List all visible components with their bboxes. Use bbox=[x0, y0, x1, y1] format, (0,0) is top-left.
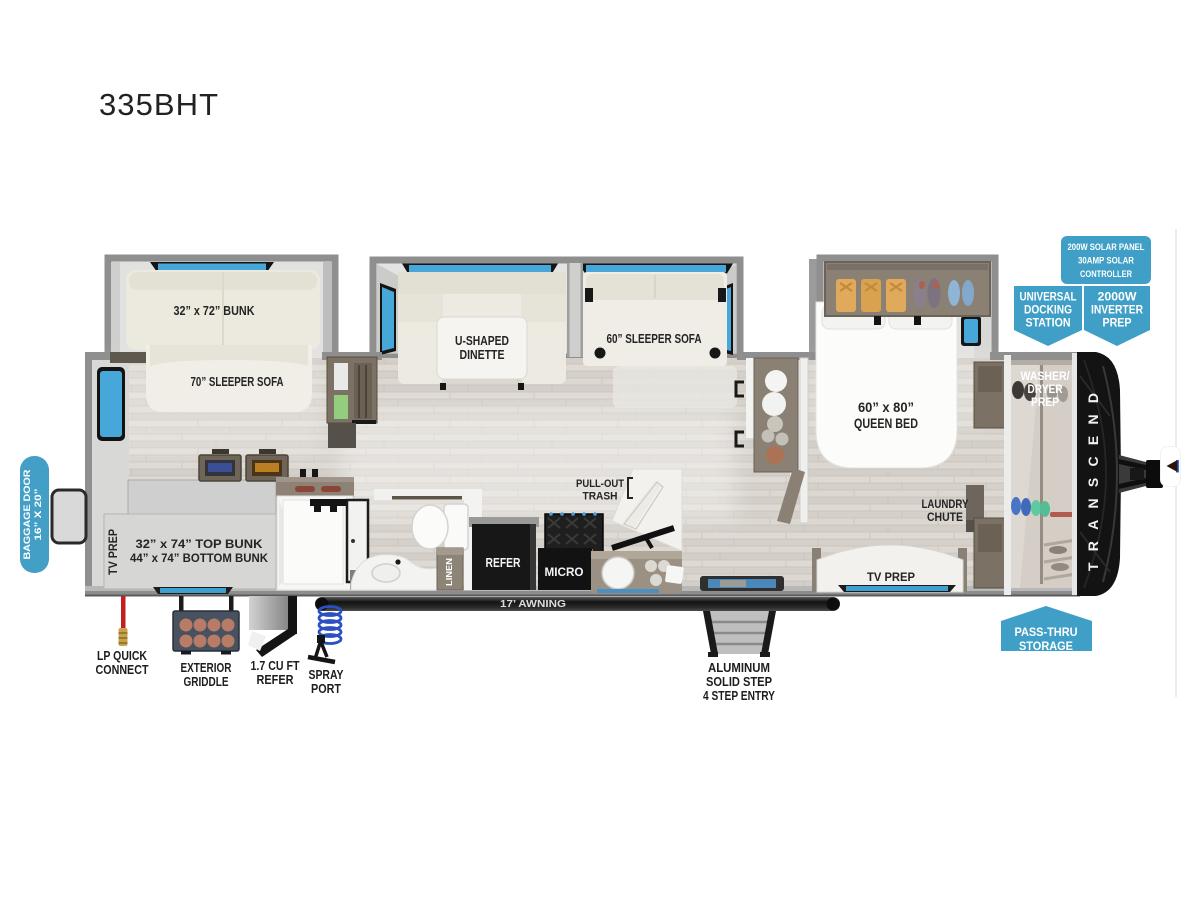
svg-text:4 STEP ENTRY: 4 STEP ENTRY bbox=[703, 689, 776, 703]
svg-text:LAUNDRY: LAUNDRY bbox=[922, 499, 969, 511]
svg-text:2000W: 2000W bbox=[1098, 292, 1137, 304]
svg-text:60” x 80”: 60” x 80” bbox=[858, 400, 914, 415]
svg-text:1.7 CU FT: 1.7 CU FT bbox=[251, 659, 300, 673]
svg-text:DINETTE: DINETTE bbox=[460, 348, 505, 362]
svg-text:MICRO: MICRO bbox=[545, 565, 584, 579]
svg-text:TRASH: TRASH bbox=[583, 491, 618, 503]
svg-text:DRYER: DRYER bbox=[1028, 384, 1064, 396]
svg-text:LINEN: LINEN bbox=[444, 558, 454, 586]
svg-text:STORAGE: STORAGE bbox=[1019, 639, 1073, 653]
svg-text:16” X 20”: 16” X 20” bbox=[33, 488, 44, 540]
svg-text:SOLID STEP: SOLID STEP bbox=[706, 675, 772, 689]
svg-text:GRIDDLE: GRIDDLE bbox=[184, 675, 229, 689]
svg-text:TV PREP: TV PREP bbox=[108, 529, 120, 575]
svg-text:200W SOLAR PANEL: 200W SOLAR PANEL bbox=[1068, 242, 1145, 253]
svg-text:32” x 72” BUNK: 32” x 72” BUNK bbox=[174, 303, 256, 318]
svg-text:LP QUICK: LP QUICK bbox=[97, 649, 147, 663]
svg-text:335BHT: 335BHT bbox=[99, 87, 218, 122]
svg-text:PULL-OUT: PULL-OUT bbox=[576, 478, 624, 490]
svg-text:ALUMINUM: ALUMINUM bbox=[708, 661, 770, 675]
svg-text:REFER: REFER bbox=[486, 556, 521, 570]
svg-text:STATION: STATION bbox=[1026, 318, 1071, 330]
svg-text:DOCKING: DOCKING bbox=[1024, 305, 1072, 317]
svg-text:UNIVERSAL: UNIVERSAL bbox=[1020, 292, 1077, 304]
svg-text:U-SHAPED: U-SHAPED bbox=[455, 334, 509, 348]
svg-text:CHUTE: CHUTE bbox=[927, 512, 963, 524]
svg-text:44” x 74” BOTTOM BUNK: 44” x 74” BOTTOM BUNK bbox=[130, 551, 268, 565]
svg-text:PREP: PREP bbox=[1031, 397, 1059, 409]
svg-text:SPRAY: SPRAY bbox=[309, 668, 345, 682]
svg-text:CONNECT: CONNECT bbox=[96, 663, 149, 677]
svg-text:30AMP SOLAR: 30AMP SOLAR bbox=[1078, 256, 1134, 267]
svg-text:60” SLEEPER SOFA: 60” SLEEPER SOFA bbox=[607, 331, 702, 346]
svg-text:70” SLEEPER SOFA: 70” SLEEPER SOFA bbox=[191, 374, 284, 389]
svg-text:CONTROLLER: CONTROLLER bbox=[1080, 269, 1132, 280]
svg-text:INVERTER: INVERTER bbox=[1091, 305, 1144, 317]
svg-text:QUEEN BED: QUEEN BED bbox=[854, 416, 918, 431]
svg-text:TV PREP: TV PREP bbox=[867, 570, 915, 584]
svg-text:17’ AWNING: 17’ AWNING bbox=[500, 598, 566, 610]
svg-text:EXTERIOR: EXTERIOR bbox=[181, 661, 232, 675]
svg-text:32” x 74” TOP BUNK: 32” x 74” TOP BUNK bbox=[136, 537, 264, 551]
svg-text:TRANSCEND: TRANSCEND bbox=[1085, 385, 1101, 571]
svg-text:PREP: PREP bbox=[1103, 318, 1132, 330]
svg-text:WASHER/: WASHER/ bbox=[1021, 371, 1071, 383]
svg-text:REFER: REFER bbox=[257, 673, 294, 687]
svg-text:PORT: PORT bbox=[311, 682, 341, 696]
svg-text:PASS-THRU: PASS-THRU bbox=[1015, 625, 1078, 639]
svg-text:BAGGAGE DOOR: BAGGAGE DOOR bbox=[22, 469, 33, 559]
